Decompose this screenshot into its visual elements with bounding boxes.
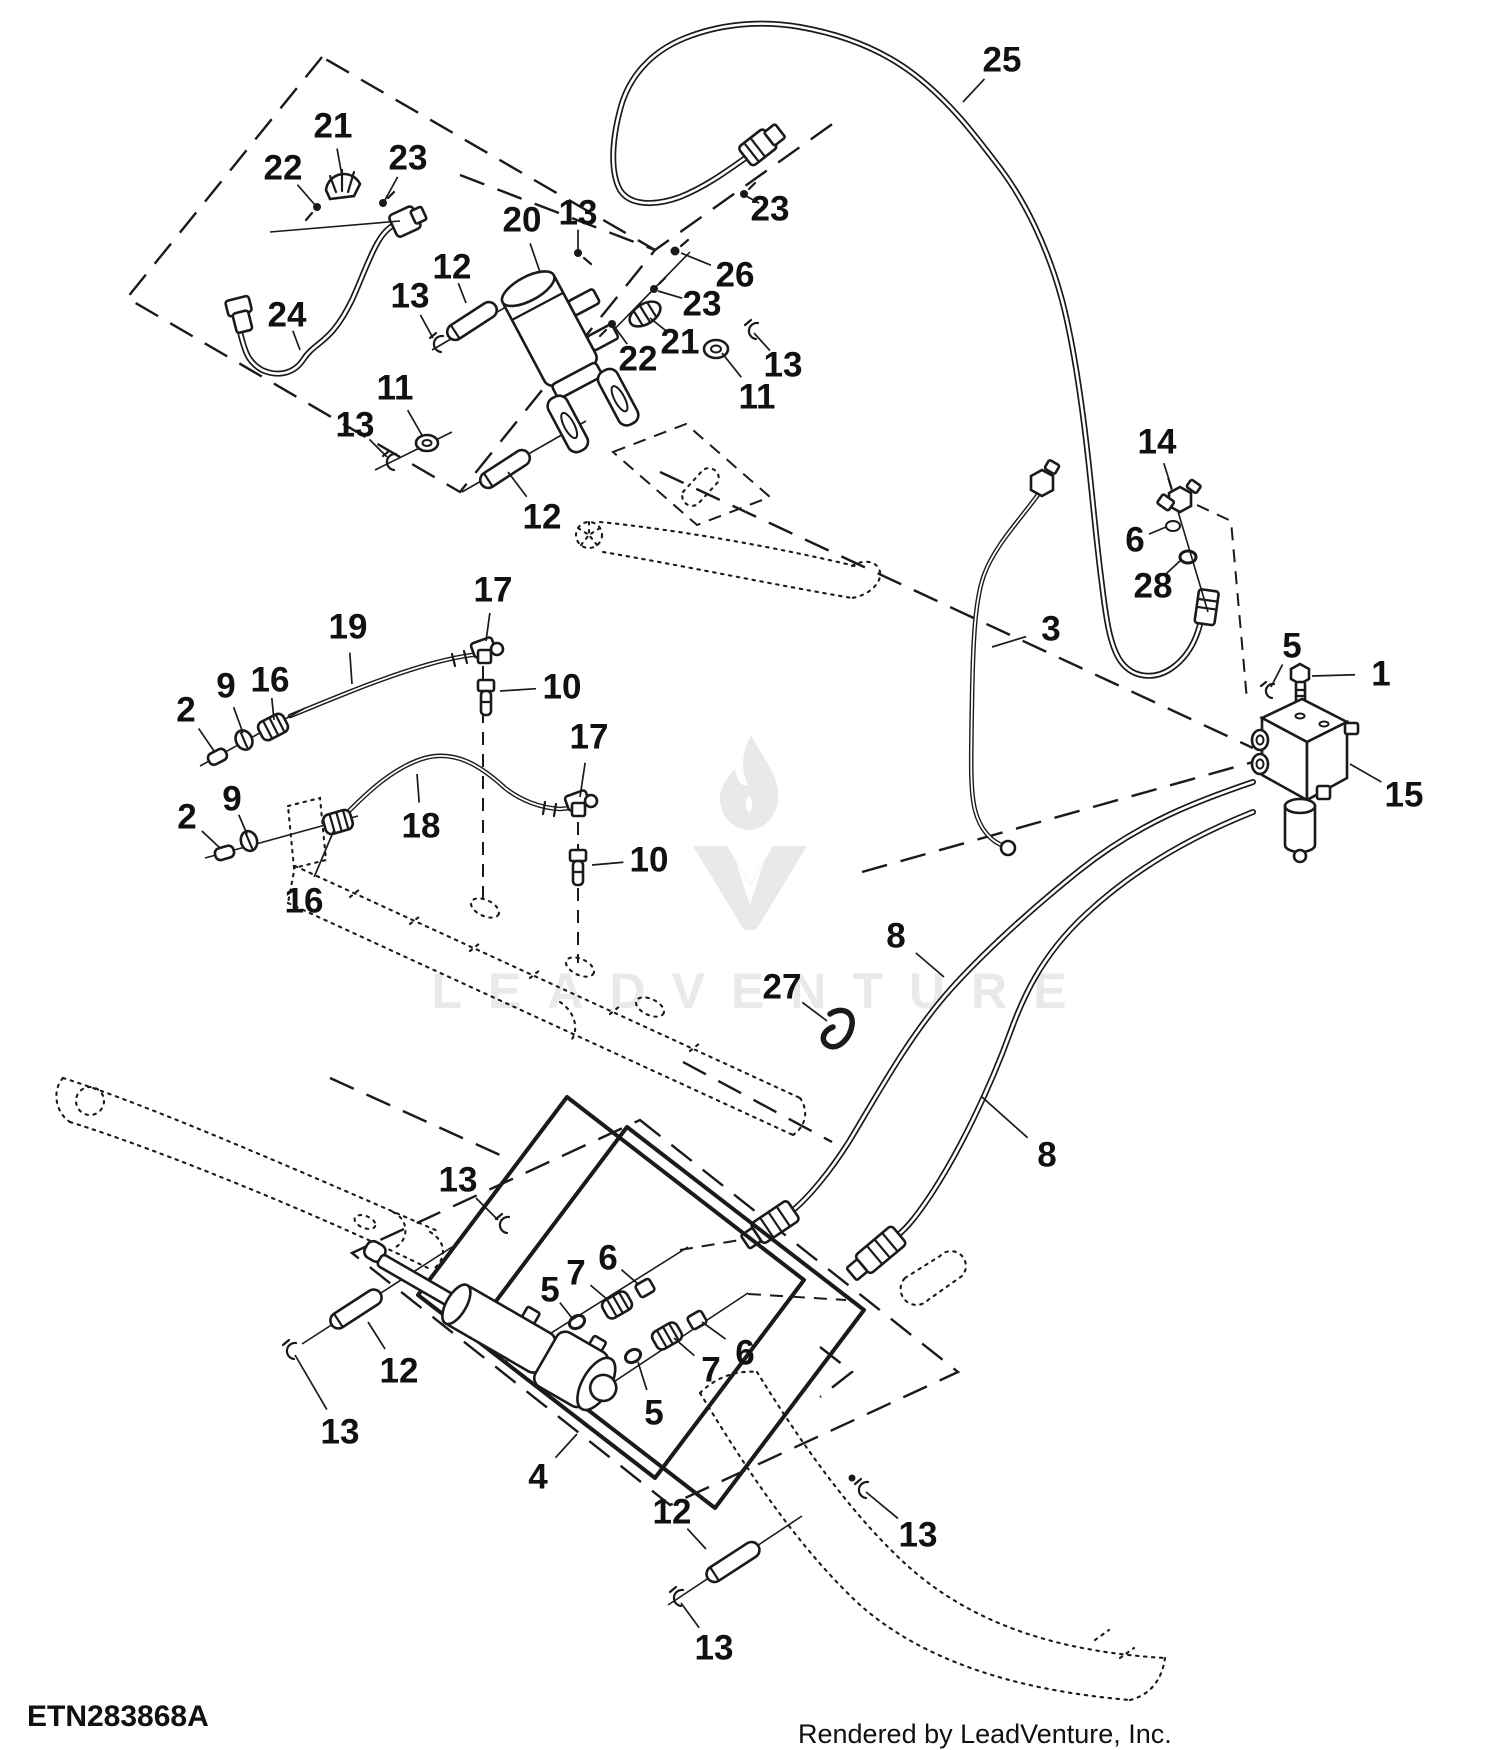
washer-9a: [232, 727, 255, 752]
dashed-line-to-valve-upper: [660, 472, 1253, 748]
callout-leader-15: [1350, 764, 1381, 782]
line-3-top-fitting: [1031, 460, 1060, 496]
plug-2a: [206, 747, 228, 766]
nut-6d: [687, 1310, 708, 1330]
callout-label-23: 23: [751, 190, 790, 229]
screw-23a: [379, 192, 394, 207]
callout-leader-5: [638, 1362, 647, 1390]
callout-leader-12: [687, 1529, 706, 1549]
callout-label-27: 27: [763, 968, 802, 1007]
callout-label-9: 9: [216, 667, 235, 706]
callout-leader-2: [199, 728, 214, 751]
pin-12d: [703, 1539, 762, 1585]
hose-24-end-fitting-left: [225, 296, 257, 335]
callout-label-3: 3: [1041, 610, 1060, 649]
screw-26: [671, 240, 689, 256]
callout-leader-11: [408, 410, 423, 437]
o-ring-5d: [623, 1347, 643, 1365]
callout-leader-2: [202, 831, 220, 848]
screw-13-top: [574, 249, 591, 264]
nut-6c: [635, 1278, 656, 1298]
callout-leader-6: [622, 1270, 639, 1284]
washer-9b: [239, 829, 260, 853]
callout-leader-6: [1149, 527, 1166, 534]
callout-label-11: 11: [377, 369, 414, 408]
callout-label-2: 2: [177, 798, 196, 837]
phantom-parts: [56, 468, 1165, 1700]
callout-leader-10: [592, 862, 623, 865]
callout-label-8: 8: [886, 917, 905, 956]
callout-label-13: 13: [391, 277, 430, 316]
hose-8-upper-end-fitting: [739, 1200, 801, 1252]
callout-label-21: 21: [661, 323, 700, 362]
hose-24-end-fitting-right: [388, 202, 429, 238]
callout-leader-10: [500, 689, 536, 691]
callout-label-19: 19: [329, 608, 368, 647]
callout-label-13: 13: [321, 1413, 360, 1452]
screw-22a: [306, 203, 321, 220]
callout-leader-13: [295, 1355, 327, 1410]
callout-label-13: 13: [695, 1629, 734, 1668]
phantom-bottom-bracket: [700, 1251, 1165, 1700]
callout-label-23: 23: [389, 139, 428, 178]
callout-label-10: 10: [543, 668, 582, 707]
callout-label-1: 1: [1371, 655, 1390, 694]
oil-line-3: [971, 460, 1060, 855]
callout-label-22: 22: [264, 149, 303, 188]
callout-label-6: 6: [735, 1334, 754, 1373]
callout-leader-25: [963, 79, 984, 102]
plug-2b: [214, 844, 236, 861]
callout-leader-23: [385, 177, 398, 200]
callout-label-10: 10: [630, 841, 669, 880]
watermark-flame-icon: [720, 735, 778, 830]
callout-leader-26: [681, 253, 711, 265]
dashed-box-pedal: [613, 424, 770, 525]
callout-label-13: 13: [899, 1516, 938, 1555]
callout-leader-7: [590, 1285, 608, 1300]
washer-11b: [416, 435, 438, 451]
callout-leader-23: [658, 291, 682, 298]
callout-label-21: 21: [314, 107, 353, 146]
pins-washers-rings: [283, 299, 1274, 1606]
fitting-16b: [322, 809, 354, 836]
callout-leader-13: [681, 1603, 699, 1628]
hoses-and-tubes: [225, 24, 1253, 1284]
pin-12a: [444, 299, 500, 343]
callout-leader-5: [1271, 664, 1283, 687]
callout-label-17: 17: [570, 718, 609, 757]
callout-label-15: 15: [1385, 776, 1424, 815]
callout-leader-18: [417, 774, 419, 803]
callout-label-13: 13: [336, 406, 375, 445]
dashed-chevron: [820, 1347, 852, 1397]
phantom-pedal: [576, 468, 880, 598]
fitting-7a: [600, 1289, 634, 1320]
callout-label-8: 8: [1037, 1136, 1056, 1175]
dashed-hose-b-axis: [748, 1294, 846, 1300]
callout-label-23: 23: [683, 285, 722, 324]
callout-label-17: 17: [474, 571, 513, 610]
pin-12b: [477, 447, 533, 491]
dashed-hose-a-axis: [680, 1239, 746, 1250]
rendered-by-credit: Rendered by LeadVenture, Inc.: [798, 1719, 1172, 1749]
callout-label-12: 12: [433, 248, 472, 287]
snap-ring-13f: [283, 1340, 296, 1359]
fitting-21b-rosette: [625, 297, 664, 332]
hose-8-lower-end-fitting: [844, 1225, 907, 1283]
callout-label-16: 16: [251, 661, 290, 700]
callout-label-7: 7: [701, 1351, 720, 1390]
callout-leader-14: [1164, 463, 1172, 489]
parts-diagram-page: LEADVENTURE: [0, 0, 1500, 1750]
connector-10b: [570, 850, 586, 885]
callout-label-24: 24: [268, 296, 307, 335]
callout-leader-3: [992, 637, 1026, 647]
callout-leader-12: [368, 1322, 385, 1349]
dashed-seg-b: [683, 1062, 832, 1142]
callout-leader-1: [1312, 675, 1355, 676]
line-3-bottom-nut: [1001, 841, 1015, 855]
valve-block-15: [1252, 699, 1358, 862]
tube-18: [342, 756, 570, 818]
callout-label-12: 12: [523, 498, 562, 537]
callout-leader-13: [420, 315, 433, 338]
o-ring-28: [1180, 551, 1196, 563]
callout-leader-12: [508, 472, 527, 497]
callout-label-4: 4: [528, 1458, 548, 1497]
callout-leader-8: [982, 1097, 1028, 1138]
callout-leader-4: [555, 1434, 577, 1458]
callout-leader-20: [530, 243, 540, 272]
callout-label-5: 5: [540, 1271, 559, 1310]
tube-19: [290, 651, 481, 716]
callout-leader-19: [350, 653, 352, 684]
callout-leader-21: [337, 149, 342, 177]
callout-label-6: 6: [1125, 521, 1144, 560]
callout-label-14: 14: [1138, 423, 1177, 462]
callout-leader-9: [234, 707, 243, 733]
callout-label-25: 25: [983, 41, 1022, 80]
dashed-assembly-lines: [127, 57, 1253, 1505]
callout-label-2: 2: [176, 691, 195, 730]
callout-label-28: 28: [1134, 567, 1173, 606]
callout-leader-5: [560, 1303, 572, 1318]
callout-label-22: 22: [619, 340, 658, 379]
callout-label-18: 18: [402, 807, 441, 846]
callout-label-13: 13: [559, 194, 598, 233]
callout-leader-6: [702, 1322, 726, 1339]
pin-12c: [327, 1286, 384, 1331]
phantom-left-arm: [56, 1078, 443, 1270]
callout-label-13: 13: [439, 1161, 478, 1200]
callout-label-20: 20: [503, 201, 542, 240]
callout-label-5: 5: [1282, 627, 1301, 666]
part-code: ETN283868A: [27, 1700, 209, 1733]
washer-6a: [1166, 521, 1180, 531]
callout-label-5: 5: [644, 1394, 663, 1433]
diagram-canvas: LEADVENTURE: [0, 0, 1500, 1750]
callout-leader-11: [722, 353, 741, 377]
dashed-line-to-valve-lower: [862, 762, 1253, 872]
callout-label-7: 7: [566, 1254, 585, 1293]
callout-leader-7: [674, 1338, 694, 1356]
callout-leader-22: [297, 185, 315, 205]
callout-label-16: 16: [285, 882, 324, 921]
callout-label-12: 12: [380, 1352, 419, 1391]
callout-label-6: 6: [598, 1239, 617, 1278]
fitting-14: [1157, 479, 1201, 512]
callout-leader-13: [866, 1492, 898, 1518]
watermark-v-icon: [693, 846, 807, 930]
callout-label-12: 12: [653, 1493, 692, 1532]
screw-13h-dot: [849, 1475, 856, 1482]
callout-label-9: 9: [222, 780, 241, 819]
fitting-7b: [650, 1320, 684, 1351]
snap-ring-13h: [855, 1479, 868, 1498]
dashed-seg-a: [330, 1078, 500, 1155]
fitting-21-rosette: [326, 170, 360, 199]
connector-10a: [478, 680, 494, 715]
snap-ring-13e: [496, 1214, 509, 1233]
callout-label-11: 11: [739, 378, 776, 417]
